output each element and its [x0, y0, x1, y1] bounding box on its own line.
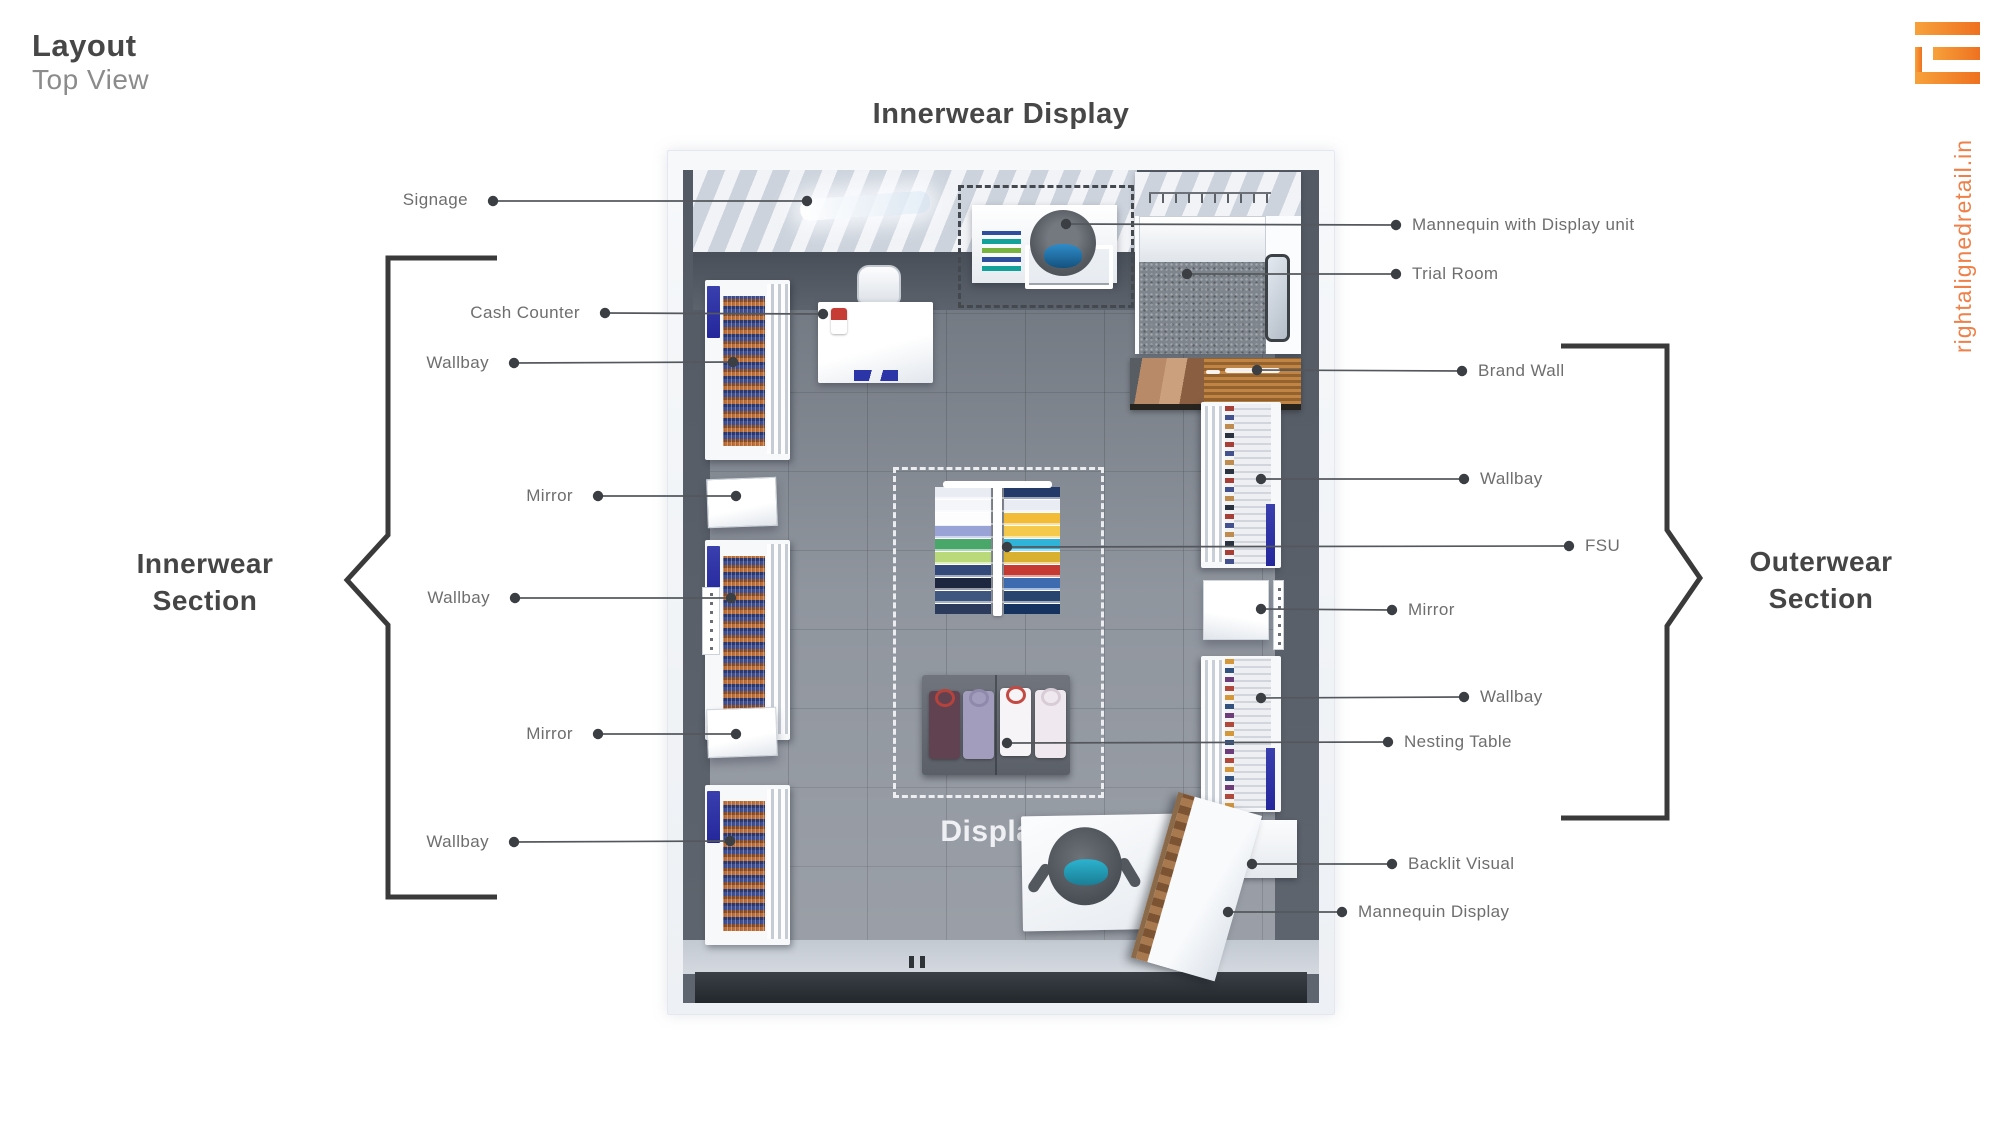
hanger-rail — [1149, 192, 1271, 203]
wallbay-side-panels — [1201, 660, 1223, 806]
wallbay-left-1 — [705, 280, 790, 460]
label-mirror-1: Mirror — [343, 483, 573, 509]
leader-dot — [1457, 366, 1467, 376]
wallbay-sign — [1266, 504, 1275, 566]
leader-dot — [600, 308, 610, 318]
logo-bar-icon — [1933, 47, 1980, 60]
wallbay-merchandise — [723, 296, 765, 446]
mannequin-display-unit — [972, 205, 1117, 283]
cash-counter — [818, 302, 933, 383]
mirror-left-2 — [706, 707, 778, 758]
label-mannequin-unit: Mannequin with Display unit — [1412, 212, 1634, 238]
trial-room-bench — [1139, 216, 1266, 264]
label-mannequin-display: Mannequin Display — [1358, 899, 1509, 925]
wallbay-right-1 — [1201, 402, 1281, 568]
door-mark — [920, 956, 925, 968]
logo-bar-icon — [1915, 72, 1980, 84]
leader-dot — [1387, 605, 1397, 615]
leader-dot — [1387, 859, 1397, 869]
folded-shirt — [1000, 688, 1031, 756]
trial-room — [1135, 172, 1301, 354]
website-link[interactable]: rightalignedretail.in — [1950, 100, 1986, 392]
leader-dot — [1459, 474, 1469, 484]
folded-shirt — [963, 691, 994, 759]
wallbay-merchandise — [723, 556, 765, 726]
trial-room-mirror — [1265, 254, 1290, 342]
label-wallbay-1: Wallbay — [259, 350, 489, 376]
brand-wall-text-mark — [1206, 370, 1220, 374]
brand-wall-graphic — [1130, 358, 1204, 404]
door-mark — [909, 956, 914, 968]
wallbay-packages — [1225, 658, 1234, 808]
wallbay-sign — [1266, 748, 1275, 810]
mannequin-briefs — [1064, 859, 1108, 886]
leader-dot — [510, 593, 520, 603]
leader-dot — [593, 729, 603, 739]
wallbay-left-3 — [705, 785, 790, 945]
wallbay-merchandise — [723, 801, 765, 931]
mirror-right — [1203, 580, 1269, 640]
wallbay-right-2 — [1201, 656, 1281, 812]
brand-wall-text-mark — [1225, 368, 1280, 373]
label-wallbay-3: Wallbay — [259, 829, 489, 855]
label-trial-room: Trial Room — [1412, 261, 1499, 287]
leader-dot — [1391, 269, 1401, 279]
wallbay-side-panels — [767, 284, 790, 454]
wallbay-side-panels — [1201, 406, 1223, 562]
table-divider — [995, 675, 997, 775]
slide-canvas: Layout Top View rightalignedretail.in In… — [0, 0, 2001, 1125]
label-cash-counter: Cash Counter — [350, 300, 580, 326]
folded-shirt — [929, 691, 960, 759]
leader-dot — [509, 837, 519, 847]
trial-room-floor — [1139, 262, 1266, 354]
nesting-table — [922, 675, 1070, 775]
cashier-chair — [857, 265, 901, 305]
label-signage: Signage — [238, 187, 468, 213]
floor-plan: Display — [667, 150, 1335, 1015]
mirror-left-1 — [706, 477, 778, 528]
size-strip — [702, 587, 720, 655]
leader-dot — [488, 196, 498, 206]
wallbay-side-panels — [767, 789, 790, 939]
size-strip — [1273, 580, 1284, 650]
leader-dot — [1383, 737, 1393, 747]
folded-shirt — [1035, 690, 1066, 758]
mannequin-briefs — [1044, 244, 1082, 268]
wallbay-sign — [707, 286, 720, 338]
label-nesting-table: Nesting Table — [1404, 729, 1512, 755]
label-brand-wall: Brand Wall — [1478, 358, 1565, 384]
wallbay-sign — [707, 791, 720, 843]
section-line: Section — [95, 582, 315, 619]
section-line: Section — [1711, 580, 1931, 617]
label-backlit-visual: Backlit Visual — [1408, 851, 1514, 877]
leader-dot — [1459, 692, 1469, 702]
wallbay-side-panels — [767, 544, 790, 734]
leader-dot — [593, 491, 603, 501]
store-room: Display — [683, 170, 1319, 1003]
logo-bar-icon — [1915, 22, 1980, 35]
label-wallbay-r1: Wallbay — [1480, 466, 1543, 492]
label-mirror-2: Mirror — [343, 721, 573, 747]
page-subtitle: Top View — [32, 64, 149, 96]
label-fsu: FSU — [1585, 533, 1620, 559]
section-title-outerwear: Outerwear Section — [1711, 543, 1931, 617]
brand-logo-icon — [1915, 22, 1980, 84]
plan-title: Innerwear Display — [851, 98, 1151, 131]
display-unit-shelves — [982, 231, 1021, 271]
counter-logo — [854, 370, 898, 381]
page-title: Layout — [32, 28, 137, 64]
section-title-innerwear: Innerwear Section — [95, 545, 315, 619]
section-line: Outerwear — [1711, 543, 1931, 580]
label-mirror-r: Mirror — [1408, 597, 1455, 623]
section-line: Innerwear — [95, 545, 315, 582]
pos-till — [831, 308, 847, 334]
outerwear-section-bracket — [1561, 346, 1700, 818]
leader-dot — [1391, 220, 1401, 230]
leader-dot — [1564, 541, 1574, 551]
mannequin-top — [1030, 210, 1096, 276]
wallbay-packages — [1225, 404, 1234, 564]
leader-dot — [509, 358, 519, 368]
leader-dot — [1337, 907, 1347, 917]
label-wallbay-r2: Wallbay — [1480, 684, 1543, 710]
